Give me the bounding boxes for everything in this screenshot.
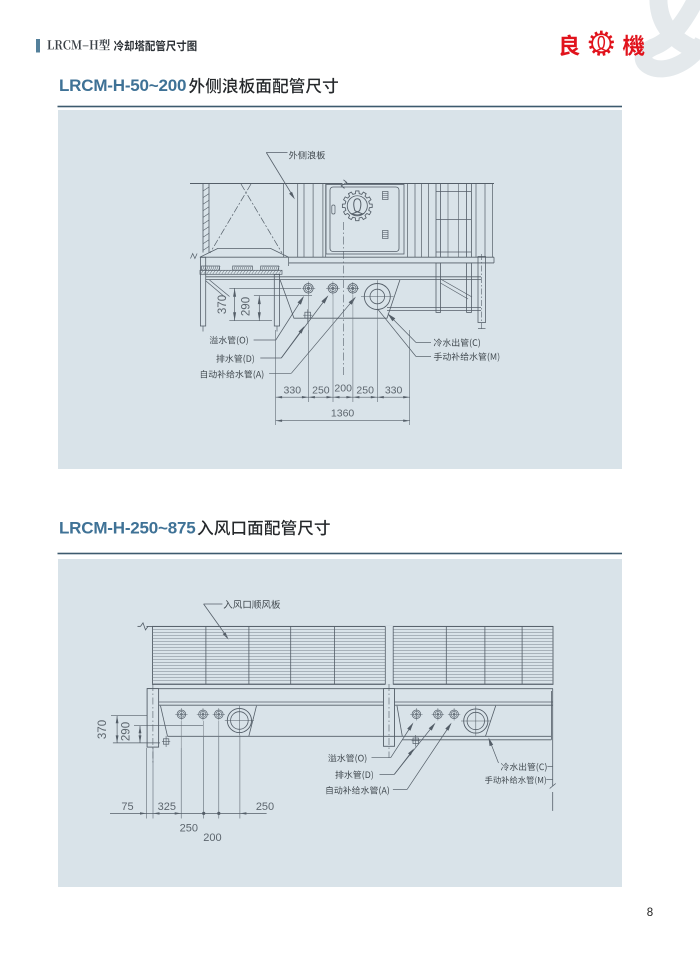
- svg-text:290: 290: [241, 297, 253, 316]
- svg-text:250: 250: [356, 385, 374, 397]
- svg-text:250: 250: [180, 823, 198, 835]
- svg-text:250: 250: [312, 385, 330, 397]
- svg-text:200: 200: [203, 832, 221, 844]
- svg-text:1360: 1360: [331, 408, 355, 420]
- svg-text:370: 370: [217, 295, 229, 314]
- svg-text:290: 290: [120, 722, 132, 741]
- svg-text:330: 330: [385, 385, 403, 397]
- svg-text:8: 8: [647, 907, 653, 919]
- svg-text:330: 330: [284, 385, 302, 397]
- svg-text:370: 370: [97, 720, 109, 739]
- svg-text:250: 250: [256, 801, 274, 813]
- svg-text:75: 75: [121, 801, 133, 813]
- svg-text:LRCM-H-50~200: LRCM-H-50~200: [59, 76, 186, 95]
- svg-text:200: 200: [334, 383, 352, 395]
- svg-text:325: 325: [158, 801, 176, 813]
- svg-text:LRCM-H-250~875: LRCM-H-250~875: [59, 519, 196, 538]
